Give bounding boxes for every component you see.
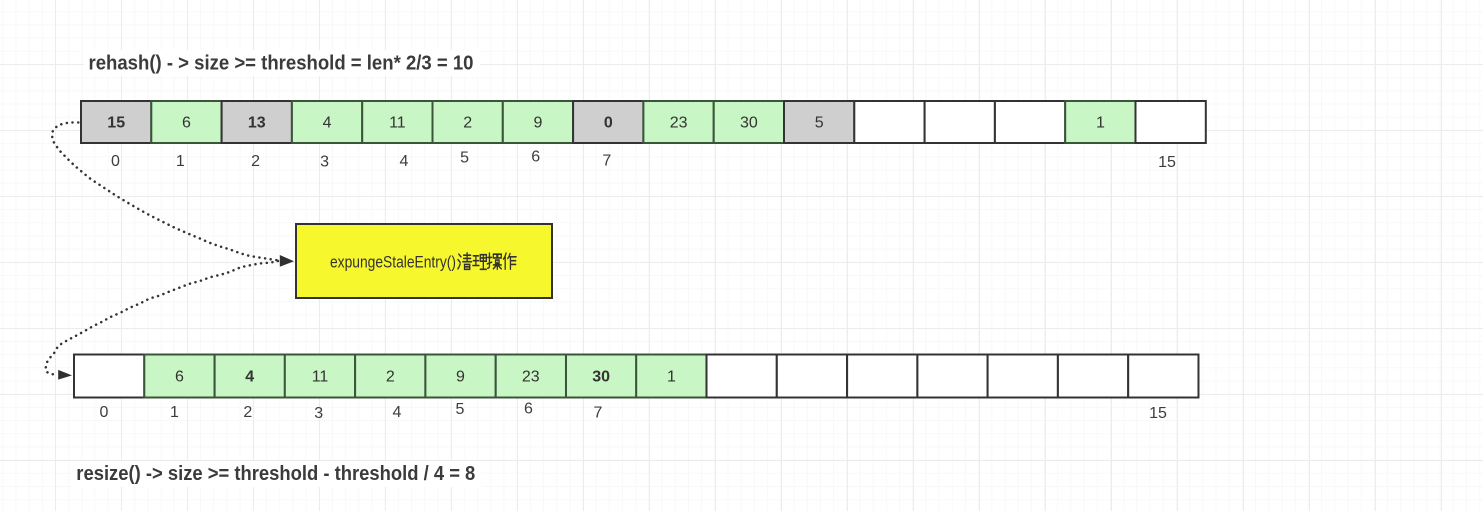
svg-text:6: 6: [531, 149, 540, 166]
svg-text:1: 1: [667, 369, 676, 386]
svg-text:5: 5: [815, 115, 824, 132]
svg-text:rehash() - > size >= threshold: rehash() - > size >= threshold = len* 2/…: [89, 52, 474, 74]
svg-text:expungeStaleEntry(): expungeStaleEntry(): [330, 253, 456, 272]
svg-text:3: 3: [314, 405, 323, 422]
svg-text:0: 0: [111, 153, 120, 170]
svg-text:6: 6: [175, 369, 184, 386]
svg-text:23: 23: [670, 115, 688, 132]
svg-text:5: 5: [460, 150, 469, 167]
svg-text:15: 15: [1149, 405, 1167, 422]
svg-text:9: 9: [456, 369, 465, 386]
svg-text:0: 0: [604, 115, 613, 132]
svg-text:6: 6: [182, 115, 191, 132]
svg-text:0: 0: [100, 404, 109, 421]
svg-text:11: 11: [389, 115, 406, 132]
svg-text:13: 13: [248, 115, 266, 132]
svg-text:2: 2: [463, 115, 472, 132]
svg-text:1: 1: [170, 404, 179, 421]
svg-text:resize() -> size >= threshold: resize() -> size >= threshold - threshol…: [76, 463, 475, 485]
svg-text:2: 2: [251, 153, 260, 170]
svg-text:15: 15: [1158, 154, 1176, 171]
svg-text:15: 15: [107, 115, 125, 132]
svg-text:4: 4: [393, 404, 402, 421]
svg-text:4: 4: [323, 115, 332, 132]
svg-text:2: 2: [386, 369, 395, 386]
svg-text:30: 30: [592, 369, 610, 386]
svg-text:4: 4: [400, 153, 409, 170]
svg-text:7: 7: [594, 405, 603, 422]
svg-text:1: 1: [176, 153, 185, 170]
svg-text:3: 3: [320, 154, 329, 171]
svg-text:23: 23: [522, 369, 540, 386]
svg-text:7: 7: [602, 153, 611, 170]
svg-text:9: 9: [534, 115, 543, 132]
svg-text:6: 6: [524, 401, 533, 418]
svg-text:4: 4: [245, 369, 254, 386]
svg-text:1: 1: [1096, 115, 1105, 132]
svg-text:5: 5: [456, 401, 465, 418]
svg-text:2: 2: [243, 404, 252, 421]
svg-text:11: 11: [312, 369, 329, 386]
svg-text:30: 30: [740, 115, 758, 132]
